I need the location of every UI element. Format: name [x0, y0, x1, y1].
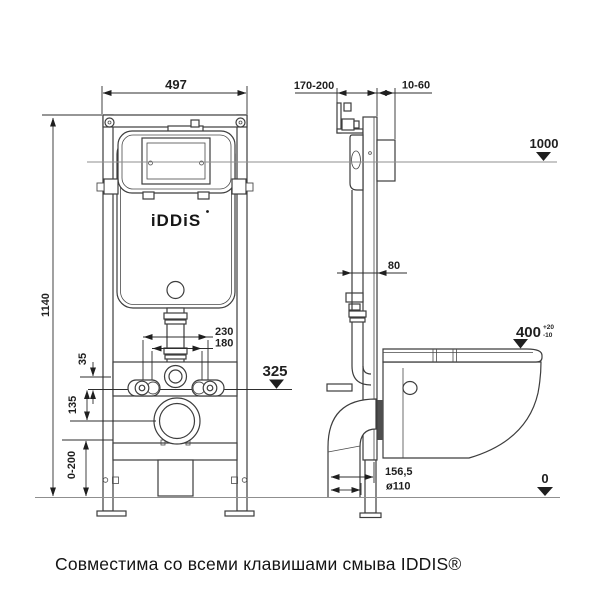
dim-label-10-60: 10-60 [402, 80, 430, 92]
dim-label-230: 230 [215, 326, 233, 338]
dim-label-1140: 1140 [40, 293, 52, 317]
tolerance-minus: -10 [543, 332, 553, 339]
dimension-front-width: 497 [102, 77, 247, 114]
dimension-front-height: 1140 [40, 115, 102, 496]
flush-pipe [164, 308, 187, 364]
dim-label-156-5: 156,5 [385, 466, 413, 478]
dim-label-135: 135 [67, 396, 79, 414]
bowl-support-bracket [327, 384, 352, 391]
front-view: iDDiS 497 1140 230 180 [40, 77, 292, 516]
plate-housing-box [377, 140, 395, 181]
flush-plate-window [142, 138, 210, 184]
drain-template-box [158, 460, 193, 496]
level-label-400: 400 [516, 324, 541, 341]
corner-screw-left [105, 118, 114, 127]
level-marker-325: 325 [262, 363, 287, 389]
dimension-35: 35 [77, 353, 93, 404]
seat-profile [383, 349, 542, 362]
dim-label-170-200: 170-200 [294, 80, 334, 92]
compatibility-caption: Совместима со всеми клавишами смыва IDDI… [55, 554, 462, 575]
brand-logo: iDDiS [151, 211, 201, 230]
dim-label-drain-diameter: ø110 [386, 481, 410, 493]
dim-label-497: 497 [165, 77, 187, 92]
dimension-135: 135 [67, 391, 87, 421]
dimension-bolt-spacing: 230 180 [143, 326, 233, 350]
logo-trademark-dot [206, 210, 209, 213]
wall-bracket [337, 103, 363, 133]
bottom-crossbar [113, 443, 237, 460]
mounting-gasket [378, 400, 384, 440]
level-marker-1000: 1000 [530, 136, 559, 161]
dim-label-80: 80 [388, 260, 400, 272]
corner-screw-right [236, 118, 245, 127]
level-label-1000: 1000 [530, 136, 559, 151]
dim-label-0-200: 0-200 [66, 451, 78, 479]
technical-drawing: iDDiS 497 1140 230 180 [0, 0, 600, 545]
level-marker-0: 0 [537, 471, 553, 496]
level-marker-400: 400 +20 -10 [513, 324, 554, 349]
side-view: 170-200 10-60 80 400 +20 -10 156,5 ø110 [294, 80, 559, 518]
level-label-0: 0 [541, 471, 548, 486]
level-label-325: 325 [262, 363, 287, 380]
installation-diagram: iDDiS 497 1140 230 180 [0, 0, 600, 600]
toilet-bowl [378, 349, 543, 458]
flush-bend [165, 366, 187, 388]
drain-outlet-front [154, 398, 200, 445]
tolerance-plus: +20 [543, 324, 554, 331]
dim-label-35: 35 [77, 353, 89, 365]
dim-label-180: 180 [215, 338, 233, 350]
flush-plate-frame [97, 120, 253, 199]
